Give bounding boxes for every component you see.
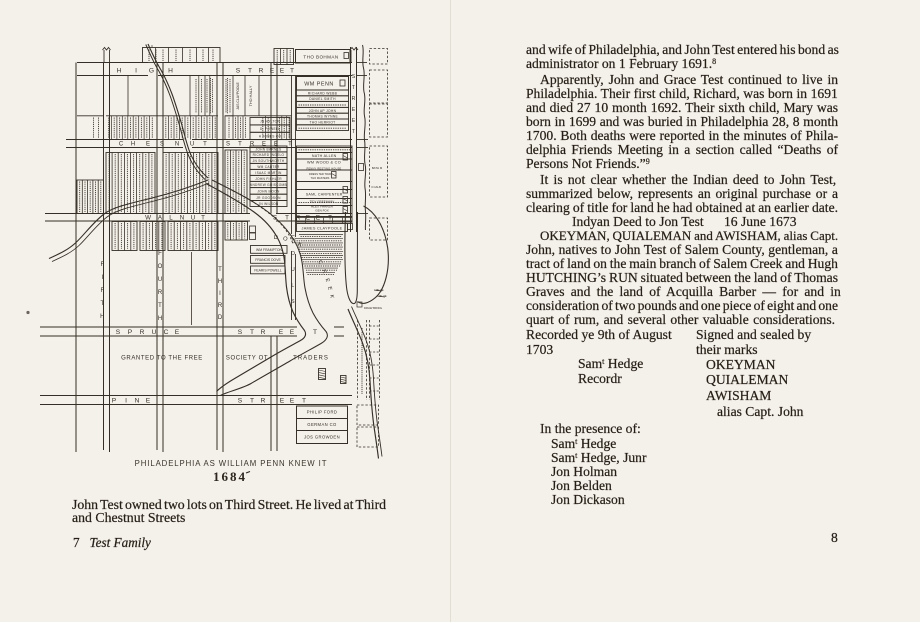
svg-text:E: E xyxy=(352,118,356,124)
svg-text:R: R xyxy=(140,329,145,336)
svg-text:WM PENN: WM PENN xyxy=(304,82,334,88)
svg-text:NATH ALLEN: NATH ALLEN xyxy=(312,154,337,158)
svg-text:U: U xyxy=(191,215,195,222)
svg-text:E: E xyxy=(175,329,180,336)
svg-text:G: G xyxy=(149,67,154,74)
svg-text:T: T xyxy=(238,141,242,147)
svg-text:S: S xyxy=(352,74,356,80)
svg-text:JN HYLTON: JN HYLTON xyxy=(260,120,281,124)
svg-text:N: N xyxy=(180,215,184,222)
svg-text:T: T xyxy=(328,215,332,222)
svg-text:C: C xyxy=(290,239,296,246)
svg-text:H: H xyxy=(218,279,222,285)
svg-text:I: I xyxy=(125,397,127,404)
svg-text:K: K xyxy=(297,242,303,249)
svg-text:E: E xyxy=(290,329,295,336)
svg-text:RICHARD INGELO: RICHARD INGELO xyxy=(253,153,285,157)
svg-text:C: C xyxy=(119,141,124,147)
svg-text:C: C xyxy=(164,329,169,336)
svg-text:SAML CARPENTER: SAML CARPENTER xyxy=(306,193,343,197)
svg-text:R: R xyxy=(261,329,266,336)
svg-text:P: P xyxy=(112,397,117,404)
svg-text:N: N xyxy=(135,397,140,404)
svg-text:E: E xyxy=(290,397,295,404)
svg-text:O: O xyxy=(291,251,295,257)
svg-text:GRANTED TO THE FREE: GRANTED TO THE FREE xyxy=(121,356,203,362)
svg-text:T: T xyxy=(302,397,306,404)
svg-text:U: U xyxy=(190,141,194,147)
svg-text:T: T xyxy=(158,303,162,309)
svg-text:T: T xyxy=(288,141,292,147)
svg-text:S: S xyxy=(291,299,295,305)
svg-text:O: O xyxy=(282,236,288,243)
svg-text:C: C xyxy=(316,259,323,265)
svg-text:T: T xyxy=(313,329,317,336)
svg-text:THO HERRIOT: THO HERRIOT xyxy=(309,120,335,124)
svg-text:R: R xyxy=(158,290,163,296)
svg-text:I: I xyxy=(219,291,221,297)
svg-text:JOS GROWDEN: JOS GROWDEN xyxy=(304,435,340,440)
svg-text:JOHN BARNES: JOHN BARNES xyxy=(256,147,282,151)
svg-text:R: R xyxy=(218,303,223,309)
svg-text:FRANCIS DOVE: FRANCIS DOVE xyxy=(255,258,281,262)
svg-text:H: H xyxy=(131,141,135,147)
svg-text:W: W xyxy=(145,215,151,222)
svg-text:H: H xyxy=(117,67,122,74)
svg-text:T: T xyxy=(201,215,205,222)
svg-text:JOHN MOON: JOHN MOON xyxy=(257,189,280,193)
svg-text:K: K xyxy=(328,294,334,298)
svg-text:DRESS TER TAVR: DRESS TER TAVR xyxy=(309,172,331,176)
svg-text:DANIEL SMITH: DANIEL SMITH xyxy=(309,97,336,101)
svg-text:H: H xyxy=(158,316,162,322)
svg-text:JR GOODSON: JR GOODSON xyxy=(256,196,281,200)
svg-text:L: L xyxy=(169,215,173,222)
svg-text:T: T xyxy=(218,267,222,273)
svg-text:I: I xyxy=(135,67,137,74)
svg-text:BATH M: BATH M xyxy=(372,166,383,170)
svg-text:S: S xyxy=(116,329,121,336)
svg-text:E: E xyxy=(326,286,332,291)
svg-text:JN WILSON: JN WILSON xyxy=(258,202,278,206)
svg-text:T: T xyxy=(290,67,294,74)
svg-text:JN SOUTHWORTH: JN SOUTHWORTH xyxy=(253,159,285,163)
svg-text:BLUE: BLUE xyxy=(379,294,386,298)
svg-text:JAS CLAYPOOLE: JAS CLAYPOOLE xyxy=(236,82,240,110)
svg-text:E: E xyxy=(146,397,151,404)
svg-text:JOHN AP JOHN: JOHN AP JOHN xyxy=(309,109,337,113)
svg-text:S: S xyxy=(238,329,243,336)
svg-text:S: S xyxy=(160,141,164,147)
svg-text:PENNY RESTING HOUSE: PENNY RESTING HOUSE xyxy=(307,167,342,171)
svg-text:N: N xyxy=(175,141,179,147)
svg-text:L: L xyxy=(291,283,294,289)
svg-text:3 CALB: 3 CALB xyxy=(371,185,381,189)
svg-text:T: T xyxy=(250,329,254,336)
svg-text:S: S xyxy=(226,141,230,147)
svg-text:U: U xyxy=(291,267,295,273)
svg-text:R: R xyxy=(261,397,266,404)
svg-text:T: T xyxy=(352,85,356,91)
svg-text:D: D xyxy=(273,235,278,242)
svg-text:FEARIS POWELL: FEARIS POWELL xyxy=(254,269,281,273)
svg-text:E: E xyxy=(280,67,285,74)
svg-text:F: F xyxy=(158,251,162,257)
svg-text:T: T xyxy=(250,397,254,404)
svg-text:E: E xyxy=(306,215,310,222)
svg-text:D: D xyxy=(218,315,223,321)
svg-text:U: U xyxy=(152,329,157,336)
svg-text:E: E xyxy=(280,397,285,404)
svg-text:T: T xyxy=(352,129,356,135)
svg-text:WM CARTER: WM CARTER xyxy=(257,165,280,169)
svg-text:F: F xyxy=(100,288,104,294)
svg-text:H: H xyxy=(100,314,104,320)
svg-text:T: T xyxy=(248,67,252,74)
svg-text:R: R xyxy=(320,269,327,275)
svg-text:E: E xyxy=(270,67,275,74)
svg-text:R: R xyxy=(352,96,356,102)
svg-text:JOHN FISHLER: JOHN FISHLER xyxy=(255,177,282,181)
svg-text:DRAW BRIDG: DRAW BRIDG xyxy=(364,306,382,310)
svg-text:E: E xyxy=(316,215,320,222)
svg-text:S: S xyxy=(238,397,243,404)
svg-text:PHILIP FORD: PHILIP FORD xyxy=(307,410,338,415)
svg-text:E: E xyxy=(279,329,284,336)
svg-text:H: H xyxy=(168,67,173,74)
svg-text:GEN FOX: GEN FOX xyxy=(315,209,329,213)
svg-text:RICHARD WEBB: RICHARD WEBB xyxy=(308,91,338,95)
svg-text:WM FRAMPTON: WM FRAMPTON xyxy=(256,248,282,252)
svg-text:D. POWELL: D. POWELL xyxy=(260,127,280,131)
svg-text:E: E xyxy=(146,141,150,147)
svg-text:E: E xyxy=(352,107,356,113)
svg-text:TIDY GREENWAY: TIDY GREENWAY xyxy=(310,200,335,204)
svg-text:R: R xyxy=(259,67,264,74)
svg-text:ANDREW GRISCOMB: ANDREW GRISCOMB xyxy=(250,183,287,187)
svg-text:F: F xyxy=(100,262,104,268)
svg-text:1684: 1684 xyxy=(213,469,247,484)
svg-text:U: U xyxy=(158,277,162,283)
svg-text:WM WOOD & CO: WM WOOD & CO xyxy=(307,161,341,165)
svg-text:P: P xyxy=(128,329,133,336)
svg-text:GERMAN CO: GERMAN CO xyxy=(307,422,337,427)
svg-text:THO BOHMAN: THO BOHMAN xyxy=(303,55,338,60)
svg-text:THO MASTERS: THO MASTERS xyxy=(311,176,330,180)
svg-text:T: T xyxy=(203,141,207,147)
svg-text:T: T xyxy=(285,215,289,222)
svg-text:JAMES CLAYPOOLE: JAMES CLAYPOOLE xyxy=(302,227,343,231)
svg-text:THO HALLY: THO HALLY xyxy=(249,85,253,106)
svg-text:H JONES CO: H JONES CO xyxy=(259,135,282,139)
svg-text:S: S xyxy=(236,67,241,74)
svg-text:O: O xyxy=(158,264,163,270)
svg-text:SOCIETY OT: SOCIETY OT xyxy=(226,356,268,362)
svg-text:E: E xyxy=(324,278,331,283)
svg-text:THOMAS WYNNE: THOMAS WYNNE xyxy=(307,115,338,119)
svg-text:PHILADELPHIA AS WILLIAM PENN K: PHILADELPHIA AS WILLIAM PENN KNEW IT xyxy=(135,459,328,468)
svg-text:ISAAC MARTIN: ISAAC MARTIN xyxy=(255,171,282,175)
svg-text:T: T xyxy=(100,301,104,307)
